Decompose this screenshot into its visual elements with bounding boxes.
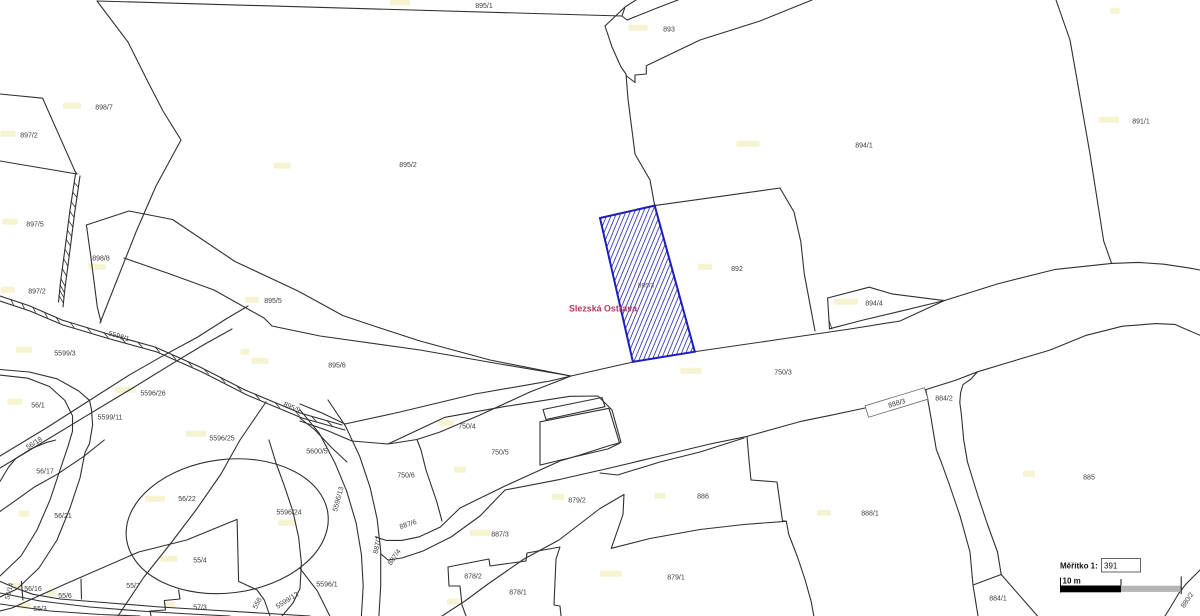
svg-text:879/1: 879/1 — [667, 575, 685, 582]
svg-text:5596/25: 5596/25 — [209, 435, 234, 442]
svg-text:885: 885 — [1083, 474, 1095, 481]
svg-text:887/3: 887/3 — [491, 532, 509, 539]
svg-text:892: 892 — [731, 266, 743, 273]
svg-text:750/6: 750/6 — [397, 472, 415, 479]
svg-text:56/17: 56/17 — [36, 468, 54, 475]
svg-text:57/3: 57/3 — [193, 605, 207, 612]
svg-text:884/2: 884/2 — [935, 395, 953, 402]
svg-text:Měřítko 1:: Měřítko 1: — [1060, 562, 1098, 571]
svg-text:55/7: 55/7 — [126, 583, 140, 590]
svg-text:5599/3: 5599/3 — [54, 350, 76, 357]
svg-text:391: 391 — [1104, 562, 1118, 571]
svg-text:56/1: 56/1 — [31, 402, 45, 409]
svg-text:884/1: 884/1 — [989, 596, 1007, 603]
svg-text:55/3: 55/3 — [33, 606, 47, 613]
svg-text:56/22: 56/22 — [178, 496, 196, 503]
svg-text:891/1: 891/1 — [1132, 119, 1150, 126]
svg-text:56/16: 56/16 — [24, 586, 42, 593]
svg-text:894/1: 894/1 — [855, 142, 873, 149]
svg-text:5600/5: 5600/5 — [306, 448, 328, 455]
svg-text:888/1: 888/1 — [861, 511, 879, 518]
svg-text:895/3: 895/3 — [638, 282, 655, 289]
svg-text:894/4: 894/4 — [865, 300, 883, 307]
svg-text:5596/24: 5596/24 — [276, 510, 301, 517]
svg-text:Slezská Ostrava: Slezská Ostrava — [569, 304, 637, 314]
svg-text:5596/1: 5596/1 — [316, 582, 338, 589]
svg-text:879/2: 879/2 — [568, 497, 586, 504]
svg-text:5599/11: 5599/11 — [98, 414, 123, 421]
svg-text:895/1: 895/1 — [475, 3, 493, 10]
svg-text:878/2: 878/2 — [464, 574, 482, 581]
svg-text:897/2: 897/2 — [20, 132, 38, 139]
svg-text:898/8: 898/8 — [92, 255, 110, 262]
svg-text:750/5: 750/5 — [491, 449, 509, 456]
svg-text:10 m: 10 m — [1063, 577, 1081, 586]
svg-text:898/7: 898/7 — [95, 105, 113, 112]
svg-text:750/3: 750/3 — [774, 369, 792, 376]
svg-text:886: 886 — [697, 493, 709, 500]
svg-text:5596/26: 5596/26 — [140, 390, 165, 397]
svg-text:895/6: 895/6 — [328, 362, 346, 369]
svg-text:895/5: 895/5 — [264, 298, 282, 305]
svg-text:893: 893 — [663, 26, 675, 33]
svg-text:55/4: 55/4 — [193, 558, 207, 565]
svg-text:897/2: 897/2 — [28, 288, 46, 295]
svg-text:55/6: 55/6 — [58, 593, 72, 600]
svg-text:897/5: 897/5 — [26, 221, 44, 228]
svg-text:878/1: 878/1 — [509, 590, 527, 597]
svg-text:895/2: 895/2 — [399, 162, 417, 169]
svg-text:750/4: 750/4 — [458, 423, 476, 430]
svg-text:56/21: 56/21 — [54, 513, 72, 520]
